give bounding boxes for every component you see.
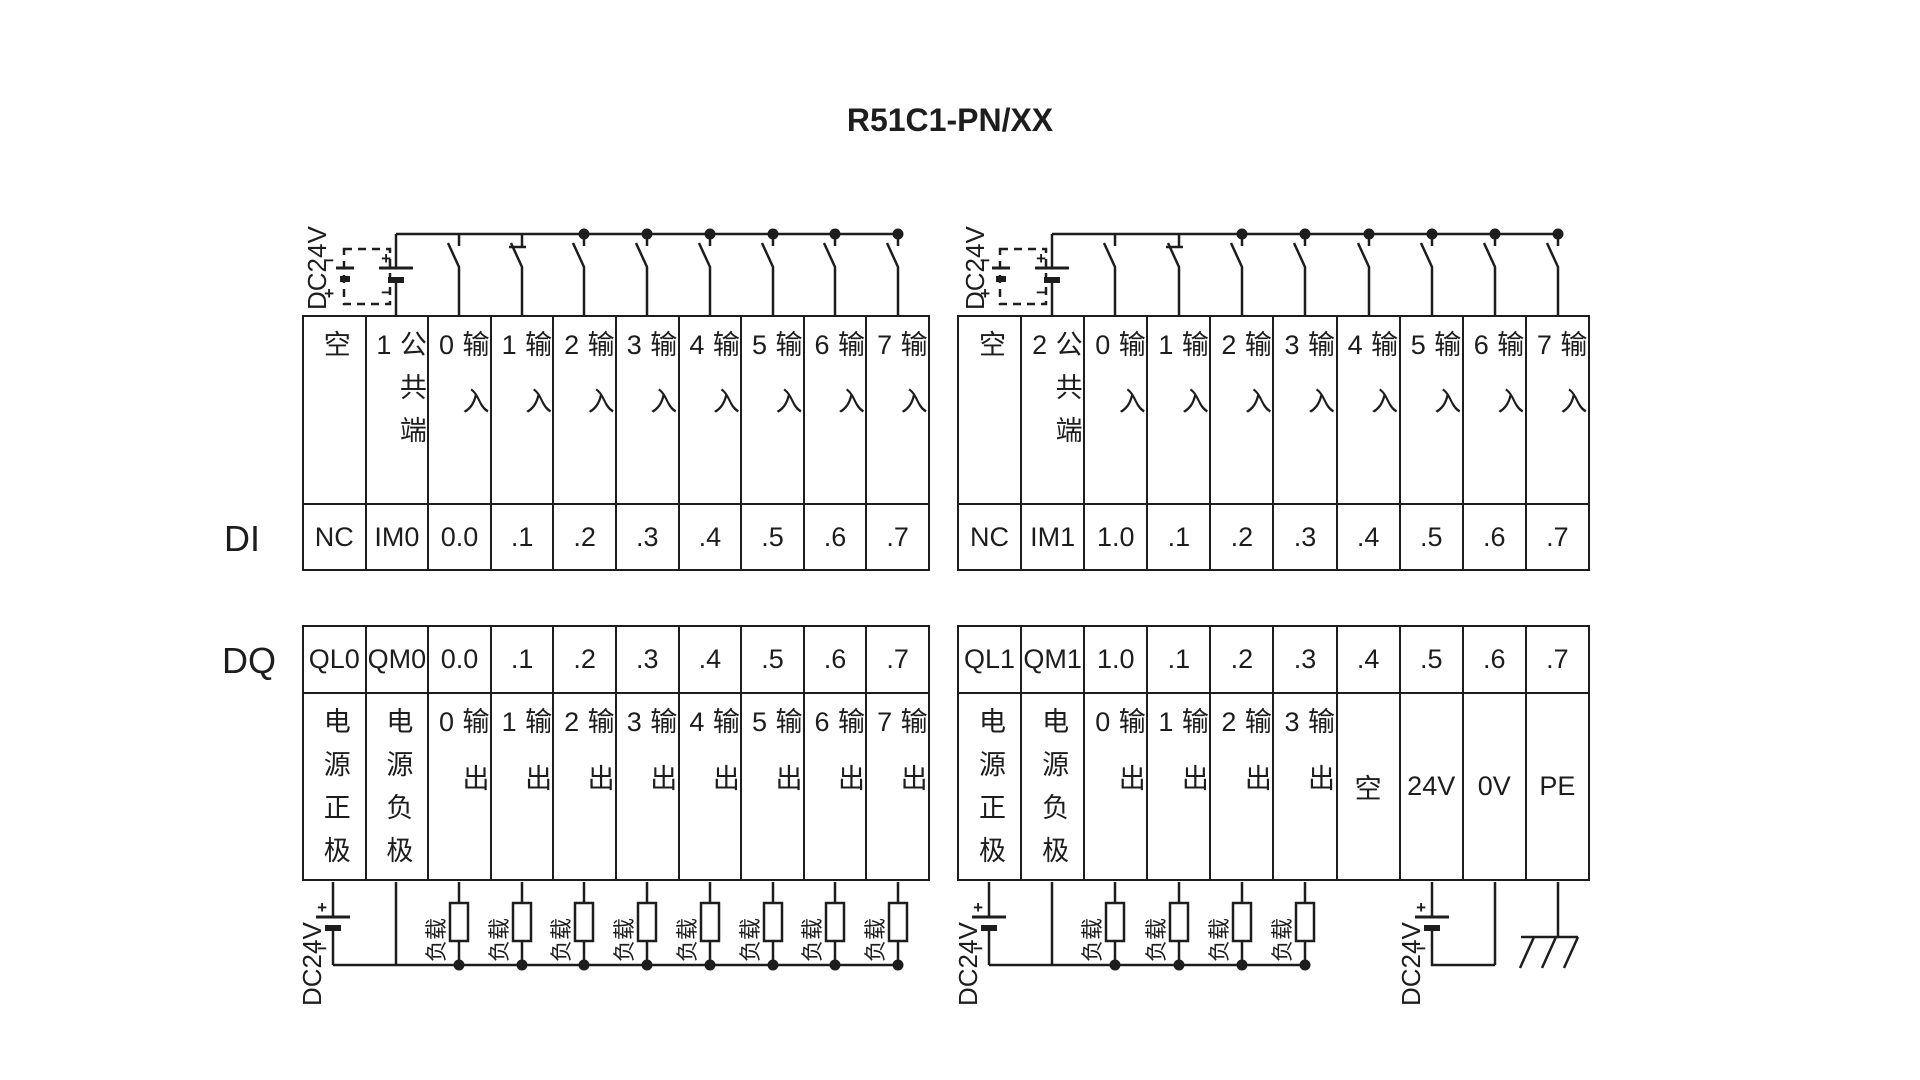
terminal-cell: .5: [1399, 503, 1464, 571]
terminal-cell: .4: [1336, 503, 1401, 571]
load-icon: 负载: [549, 882, 593, 971]
load-icon: 负载: [675, 882, 719, 971]
terminal-cell: .2: [552, 625, 617, 694]
terminal-cell: .4: [1336, 625, 1401, 694]
header-cell: 输入2: [1209, 315, 1274, 505]
header-cell: 输入6: [803, 315, 868, 505]
junction-dot: [642, 229, 653, 240]
function-cell: 电源负极: [1020, 692, 1085, 881]
load-label: 负载: [612, 918, 637, 962]
function-cell: 电源正极: [302, 692, 367, 881]
terminal-cell: .6: [803, 625, 868, 694]
junction-dot: [705, 229, 716, 240]
function-cell: 输出5: [740, 692, 805, 881]
terminal-cell: .2: [1209, 503, 1274, 571]
switch-icon: [887, 234, 898, 316]
header-cell: 空: [302, 315, 367, 505]
header-cell: 公共端2: [1020, 315, 1085, 505]
switch-icon: [509, 234, 526, 316]
dq-left-terminal-block: QL0 QM0 0.0 .1 .2 .3 .4 .5 .6 .7 电源正极 电源…: [302, 625, 930, 881]
terminal-cell: .4: [678, 625, 743, 694]
terminal-cell: .7: [1525, 625, 1590, 694]
function-cell: 输出6: [803, 692, 868, 881]
terminal-cell: IM0: [365, 503, 430, 571]
terminal-cell: QM1: [1020, 625, 1085, 694]
load-label: 负载: [1207, 918, 1232, 962]
di-left-wiring: + − − + DC24V: [302, 226, 904, 316]
load-label: 负载: [1270, 918, 1295, 962]
terminal-cell: QL0: [302, 625, 367, 694]
terminal-cell: .2: [1209, 625, 1274, 694]
switch-icon: [1104, 234, 1115, 316]
junction-dot: [1364, 229, 1375, 240]
load-icon: 负载: [738, 882, 782, 971]
function-cell: 电源正极: [957, 692, 1022, 881]
dq-left-wiring: + − DC24V 负载 负载 负载 负载 负载 负载 负载 负载: [297, 882, 907, 1006]
load-icon: 负载: [424, 882, 468, 971]
load-icon: 负载: [612, 882, 656, 971]
terminal-cell: .1: [490, 503, 555, 571]
header-cell: 输入7: [865, 315, 930, 505]
dq-left-terminal-row: QL0 QM0 0.0 .1 .2 .3 .4 .5 .6 .7: [302, 625, 930, 694]
switch-icon: [1547, 234, 1558, 316]
minus-sign: −: [1036, 283, 1046, 302]
switch-icon: [1484, 234, 1495, 316]
header-cell: 输入5: [1399, 315, 1464, 505]
switch-icon: [636, 234, 647, 316]
terminal-cell: .6: [1462, 625, 1527, 694]
terminal-cell: .5: [1399, 625, 1464, 694]
dq-right-terminal-row: QL1 QM1 1.0 .1 .2 .3 .4 .5 .6 .7: [957, 625, 1590, 694]
load-label: 负载: [1080, 918, 1105, 962]
switch-icon: [1421, 234, 1432, 316]
load-label: 负载: [549, 918, 574, 962]
load-icon: 负载: [800, 882, 844, 971]
function-cell: 空: [1336, 692, 1401, 881]
load-icon: 负载: [1207, 882, 1251, 971]
junction-dot: [893, 229, 904, 240]
header-cell: 输入2: [552, 315, 617, 505]
terminal-cell: .3: [615, 503, 680, 571]
switch-icon: [1231, 234, 1242, 316]
switch-icon: [762, 234, 773, 316]
di-right-wiring: + − − + DC24V: [960, 226, 1564, 316]
dc24v-label: DC24V: [953, 922, 983, 1006]
terminal-cell: .1: [1146, 625, 1211, 694]
junction-dot: [1237, 229, 1248, 240]
dc24v-label: DC24V: [297, 922, 327, 1006]
function-cell: 输出0: [427, 692, 492, 881]
header-cell: 输入1: [490, 315, 555, 505]
dc24v-label: DC24V: [960, 226, 990, 310]
function-cell: 输出1: [490, 692, 555, 881]
terminal-cell: 1.0: [1083, 503, 1148, 571]
terminal-cell: .1: [1146, 503, 1211, 571]
terminal-cell: .6: [1462, 503, 1527, 571]
wire: [1432, 882, 1495, 965]
function-cell: 输出7: [865, 692, 930, 881]
function-cell: 输出0: [1083, 692, 1148, 881]
dq-right-terminal-block: QL1 QM1 1.0 .1 .2 .3 .4 .5 .6 .7 电源正极 电源…: [957, 625, 1590, 881]
switch-icon: [1294, 234, 1305, 316]
terminal-cell: .5: [740, 625, 805, 694]
header-cell: 公共端1: [365, 315, 430, 505]
dc24v-label: DC24V: [1396, 922, 1426, 1006]
di-left-terminal-row: NC IM0 0.0 .1 .2 .3 .4 .5 .6 .7: [302, 503, 930, 571]
terminal-cell: QM0: [365, 625, 430, 694]
switch-icon: [573, 234, 584, 316]
switch-icon: [1358, 234, 1369, 316]
di-right-terminal-block: 空 公共端2 输入0 输入1 输入2 输入3 输入4 输入5 输入6 输入7 N…: [957, 315, 1590, 571]
switch-icon: [1166, 234, 1183, 316]
terminal-cell: .3: [1272, 503, 1337, 571]
dq-right-wiring: + − DC24V 负载 负载 负载 负载 + − DC24V: [953, 882, 1578, 1006]
load-label: 负载: [738, 918, 763, 962]
terminal-cell: NC: [302, 503, 367, 571]
load-icon: 负载: [487, 882, 531, 971]
function-cell: 输出1: [1146, 692, 1211, 881]
plus-sign: +: [317, 898, 327, 917]
header-cell: 输入3: [615, 315, 680, 505]
load-label: 负载: [675, 918, 700, 962]
terminal-cell: 1.0: [1083, 625, 1148, 694]
terminal-cell: .1: [490, 625, 555, 694]
earth-ground-icon: [1520, 882, 1578, 968]
terminal-cell: .7: [1525, 503, 1590, 571]
function-cell: 输出4: [678, 692, 743, 881]
header-cell: 输入6: [1462, 315, 1527, 505]
header-cell: 输入0: [1083, 315, 1148, 505]
dc24v-battery-icon: + −: [1415, 882, 1495, 965]
di-right-terminal-row: NC IM1 1.0 .1 .2 .3 .4 .5 .6 .7: [957, 503, 1590, 571]
function-cell: 输出3: [1272, 692, 1337, 881]
terminal-cell: QL1: [957, 625, 1022, 694]
terminal-cell: .4: [678, 503, 743, 571]
terminal-cell: 0.0: [427, 625, 492, 694]
load-label: 负载: [800, 918, 825, 962]
junction-dot: [768, 229, 779, 240]
terminal-cell: 0.0: [427, 503, 492, 571]
di-left-header-row: 空 公共端1 输入0 输入1 输入2 输入3 输入4 输入5 输入6 输入7: [302, 315, 930, 505]
function-cell: 输出2: [1209, 692, 1274, 881]
junction-dot: [830, 229, 841, 240]
function-cell: 输出2: [552, 692, 617, 881]
load-icon: 负载: [1080, 882, 1124, 971]
junction-dot: [1490, 229, 1501, 240]
switch-icon: [448, 234, 459, 316]
function-cell: 24V: [1399, 692, 1464, 881]
terminal-cell: .7: [865, 503, 930, 571]
load-icon: 负载: [863, 882, 907, 971]
terminal-cell: IM1: [1020, 503, 1085, 571]
header-cell: 空: [957, 315, 1022, 505]
header-cell: 输入4: [1336, 315, 1401, 505]
dc24v-battery-icon: + −: [379, 234, 413, 316]
header-cell: 输入3: [1272, 315, 1337, 505]
terminal-cell: .5: [740, 503, 805, 571]
dq-left-function-row: 电源正极 电源负极 输出0 输出1 输出2 输出3 输出4 输出5 输出6 输出…: [302, 692, 930, 881]
dc24v-battery-icon: + −: [1035, 234, 1069, 316]
function-cell: 电源负极: [365, 692, 430, 881]
function-cell: 输出3: [615, 692, 680, 881]
plus-sign: +: [973, 898, 983, 917]
terminal-cell: .6: [803, 503, 868, 571]
dq-right-function-row: 电源正极 电源负极 输出0 输出1 输出2 输出3 空 24V 0V PE: [957, 692, 1590, 881]
terminal-cell: .3: [615, 625, 680, 694]
header-cell: 输入4: [678, 315, 743, 505]
switch-icon: [699, 234, 710, 316]
load-label: 负载: [487, 918, 512, 962]
wiring-diagram: R51C1-PN/XX DI DQ + − − + DC24V: [0, 0, 1920, 1080]
dc24v-label: DC24V: [302, 226, 332, 310]
junction-dot: [1553, 229, 1564, 240]
function-cell: PE: [1525, 692, 1590, 881]
function-cell: 0V: [1462, 692, 1527, 881]
switch-icon: [824, 234, 835, 316]
plus-sign: +: [1416, 898, 1426, 917]
header-cell: 输入0: [427, 315, 492, 505]
load-icon: 负载: [1144, 882, 1188, 971]
terminal-cell: .3: [1272, 625, 1337, 694]
junction-dot: [579, 229, 590, 240]
header-cell: 输入1: [1146, 315, 1211, 505]
load-icon: 负载: [1270, 882, 1314, 971]
header-cell: 输入5: [740, 315, 805, 505]
load-label: 负载: [424, 918, 449, 962]
junction-dot: [1427, 229, 1438, 240]
terminal-cell: .2: [552, 503, 617, 571]
load-label: 负载: [1144, 918, 1169, 962]
di-left-terminal-block: 空 公共端1 输入0 输入1 输入2 输入3 输入4 输入5 输入6 输入7 N…: [302, 315, 930, 571]
header-cell: 输入7: [1525, 315, 1590, 505]
di-right-header-row: 空 公共端2 输入0 输入1 输入2 输入3 输入4 输入5 输入6 输入7: [957, 315, 1590, 505]
junction-dot: [1300, 229, 1311, 240]
plus-sign: +: [1036, 249, 1046, 268]
terminal-cell: NC: [957, 503, 1022, 571]
load-label: 负载: [863, 918, 888, 962]
terminal-cell: .7: [865, 625, 930, 694]
